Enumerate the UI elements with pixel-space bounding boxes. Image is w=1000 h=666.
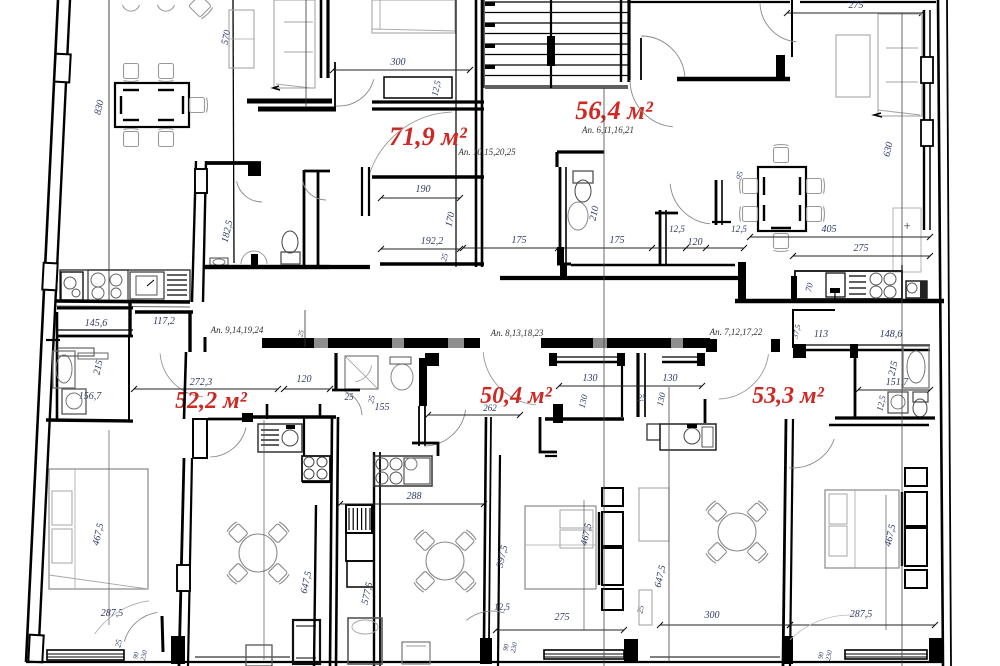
- svg-text:12,5: 12,5: [669, 224, 685, 234]
- svg-text:272,3: 272,3: [190, 377, 213, 388]
- svg-text:Ап. 8,13,18,23: Ап. 8,13,18,23: [490, 328, 544, 338]
- svg-text:Ап. 9,14,19,24: Ап. 9,14,19,24: [210, 325, 264, 335]
- svg-text:130: 130: [583, 373, 598, 384]
- svg-text:275: 275: [854, 243, 869, 254]
- svg-text:71,9 м²: 71,9 м²: [389, 122, 468, 151]
- svg-text:Ап. 10,15,20,25: Ап. 10,15,20,25: [457, 147, 516, 157]
- svg-text:Ап. 6,11,16,21: Ап. 6,11,16,21: [581, 125, 634, 135]
- svg-text:287,5: 287,5: [101, 608, 124, 619]
- svg-text:117,2: 117,2: [153, 316, 175, 327]
- svg-text:287,5: 287,5: [850, 609, 873, 620]
- svg-text:56,4 м²: 56,4 м²: [575, 96, 654, 125]
- svg-text:300: 300: [390, 57, 406, 68]
- svg-text:151,7: 151,7: [886, 377, 910, 388]
- svg-text:175: 175: [512, 235, 527, 246]
- svg-text:+: +: [903, 218, 912, 233]
- svg-text:53,3 м²: 53,3 м²: [752, 383, 824, 409]
- svg-text:262: 262: [483, 403, 497, 413]
- svg-text:Ап. 7,12,17,22: Ап. 7,12,17,22: [709, 327, 763, 337]
- svg-text:12,5: 12,5: [494, 602, 510, 612]
- svg-text:12,5: 12,5: [731, 224, 747, 234]
- svg-text:192,2: 192,2: [421, 236, 444, 247]
- svg-text:130: 130: [663, 373, 678, 384]
- svg-text:275: 275: [849, 0, 864, 11]
- svg-text:148,6: 148,6: [880, 329, 903, 340]
- svg-text:120: 120: [297, 374, 312, 385]
- svg-text:120: 120: [688, 237, 703, 248]
- svg-text:405: 405: [822, 224, 837, 235]
- svg-text:145,6: 145,6: [85, 318, 108, 329]
- svg-text:25: 25: [638, 393, 648, 403]
- svg-text:275: 275: [555, 612, 570, 623]
- svg-text:155: 155: [375, 402, 390, 413]
- svg-text:300: 300: [704, 610, 720, 621]
- svg-text:288: 288: [407, 491, 422, 502]
- svg-text:175: 175: [610, 235, 625, 246]
- svg-text:190: 190: [416, 184, 431, 195]
- svg-text:113: 113: [814, 329, 828, 340]
